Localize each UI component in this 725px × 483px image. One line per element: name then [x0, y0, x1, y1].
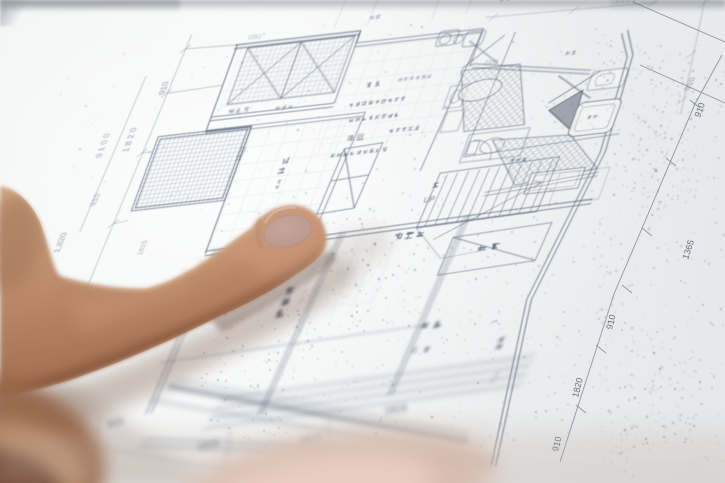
svg-text:1819: 1819 [384, 403, 408, 417]
svg-text:1820: 1820 [570, 377, 585, 399]
svg-text:910: 910 [88, 193, 102, 207]
svg-text:1061: 1061 [246, 34, 263, 41]
svg-text:910: 910 [682, 77, 698, 91]
svg-text:(6.3): (6.3) [490, 371, 502, 383]
svg-text:910: 910 [604, 313, 617, 330]
svg-text:9 1 0 0: 9 1 0 0 [93, 133, 112, 159]
svg-text:1365: 1365 [680, 238, 696, 260]
svg-text:1,820: 1,820 [51, 232, 69, 253]
svg-text:UP: UP [422, 195, 436, 205]
svg-text:6: 6 [410, 346, 420, 357]
svg-text:1615: 1615 [137, 240, 149, 256]
